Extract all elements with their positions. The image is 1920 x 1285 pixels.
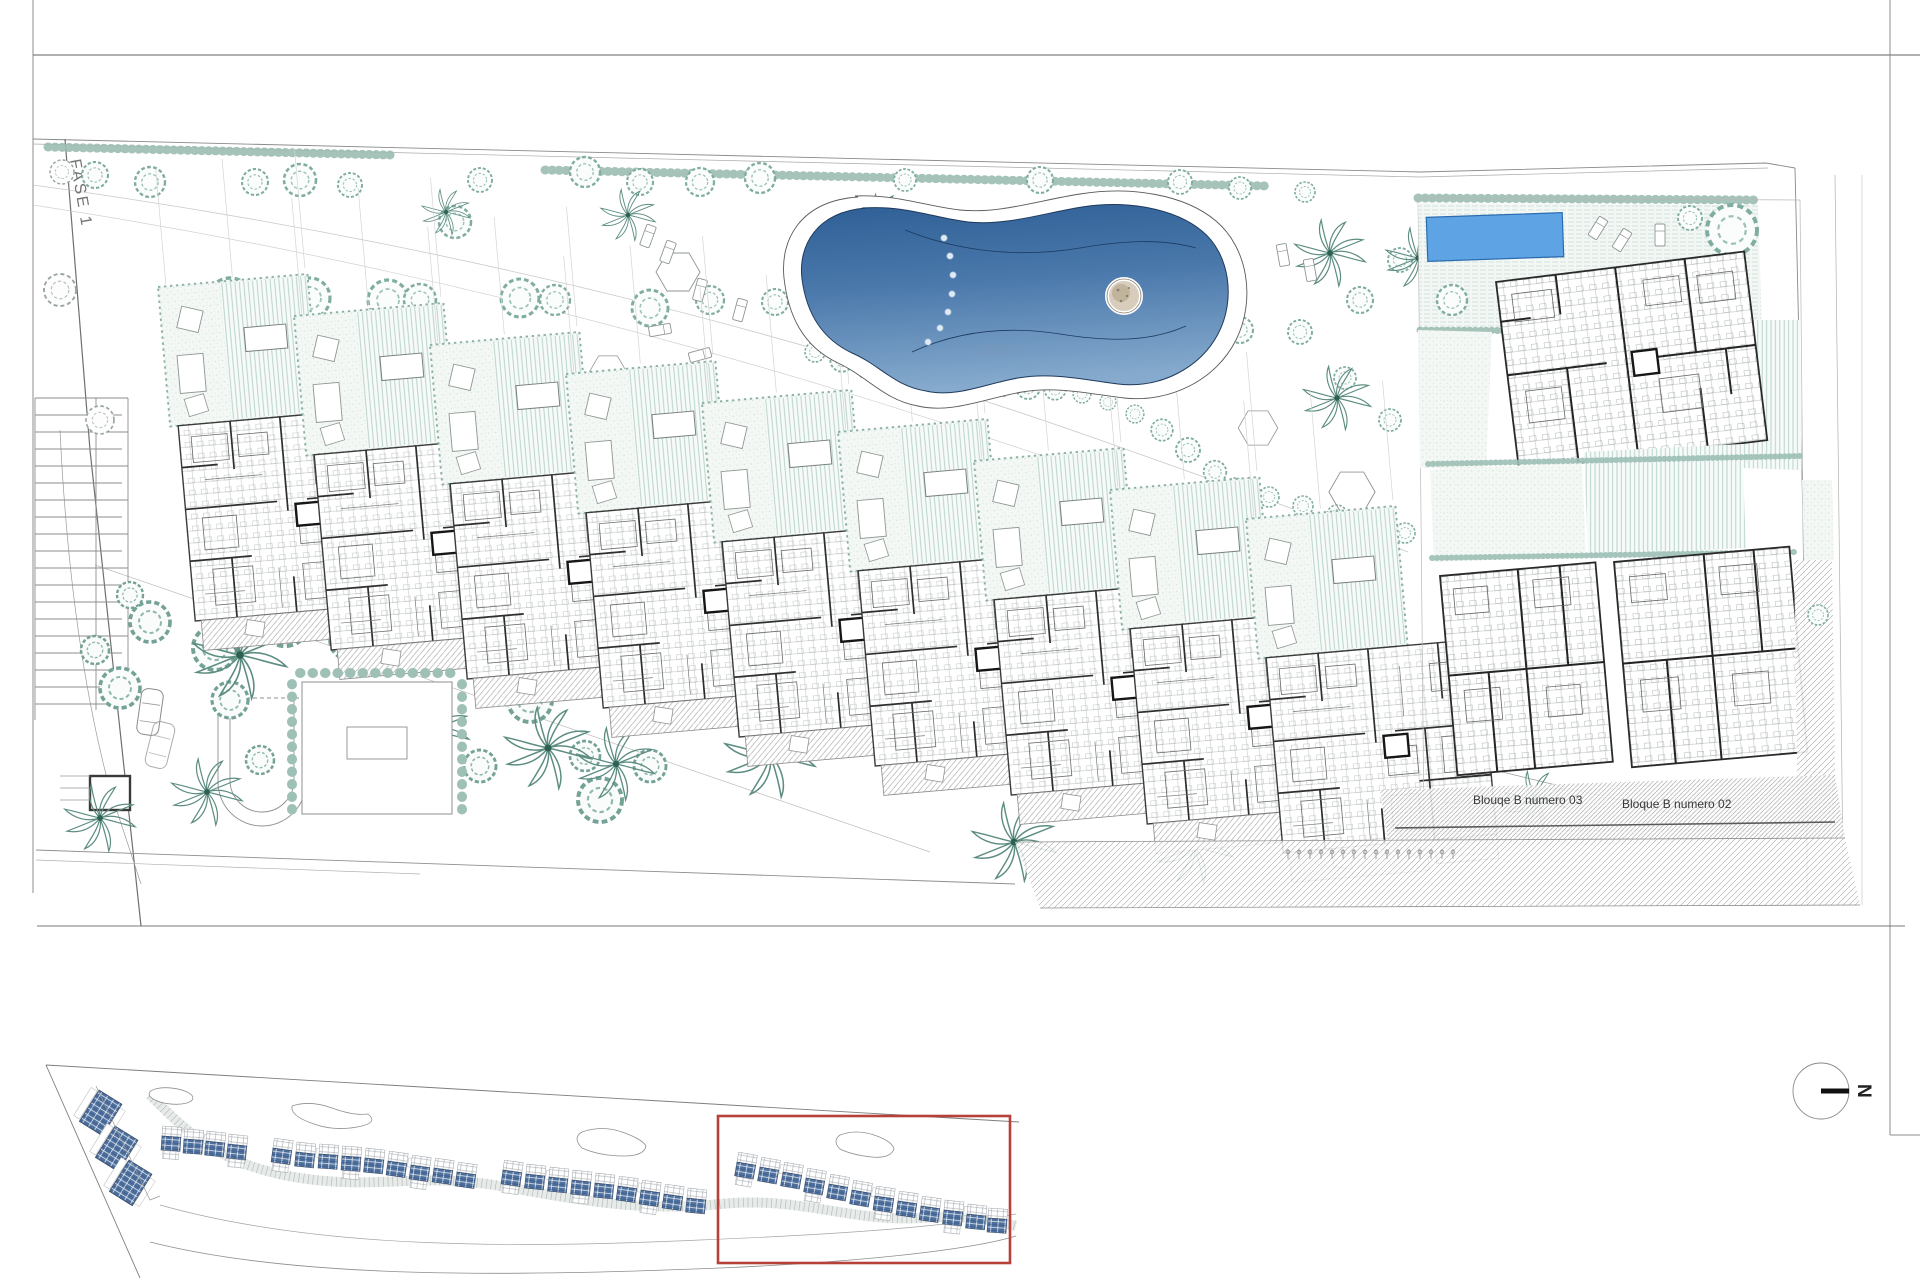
svg-text:Bloque B numero 02: Bloque B numero 02 (1622, 797, 1732, 811)
svg-text:N: N (1853, 1084, 1874, 1098)
svg-text:Blouqe B numero 03: Blouqe B numero 03 (1473, 793, 1583, 807)
svg-text:4900: 4900 (978, 341, 1020, 360)
